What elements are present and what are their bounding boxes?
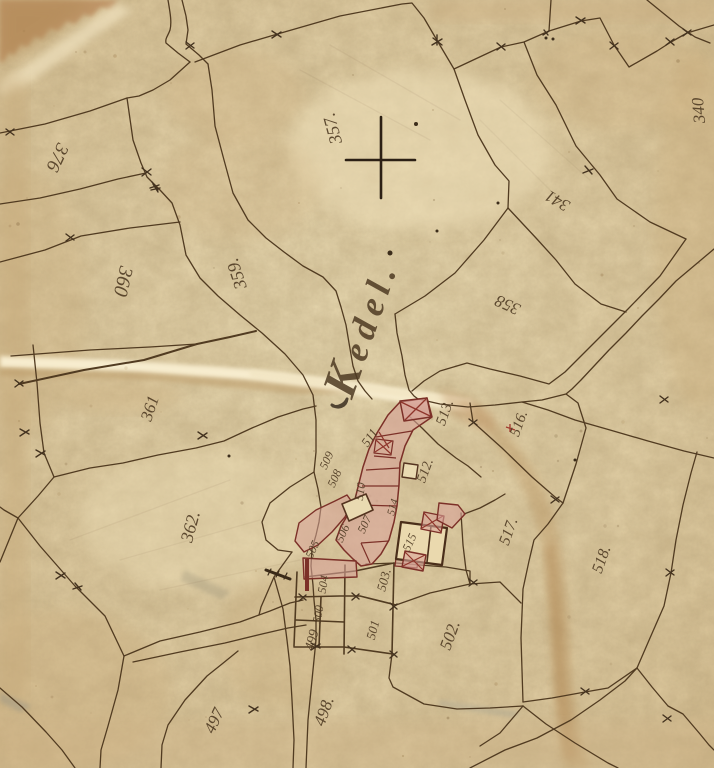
svg-text:340: 340: [688, 96, 709, 125]
svg-text:510: 510: [352, 482, 368, 502]
